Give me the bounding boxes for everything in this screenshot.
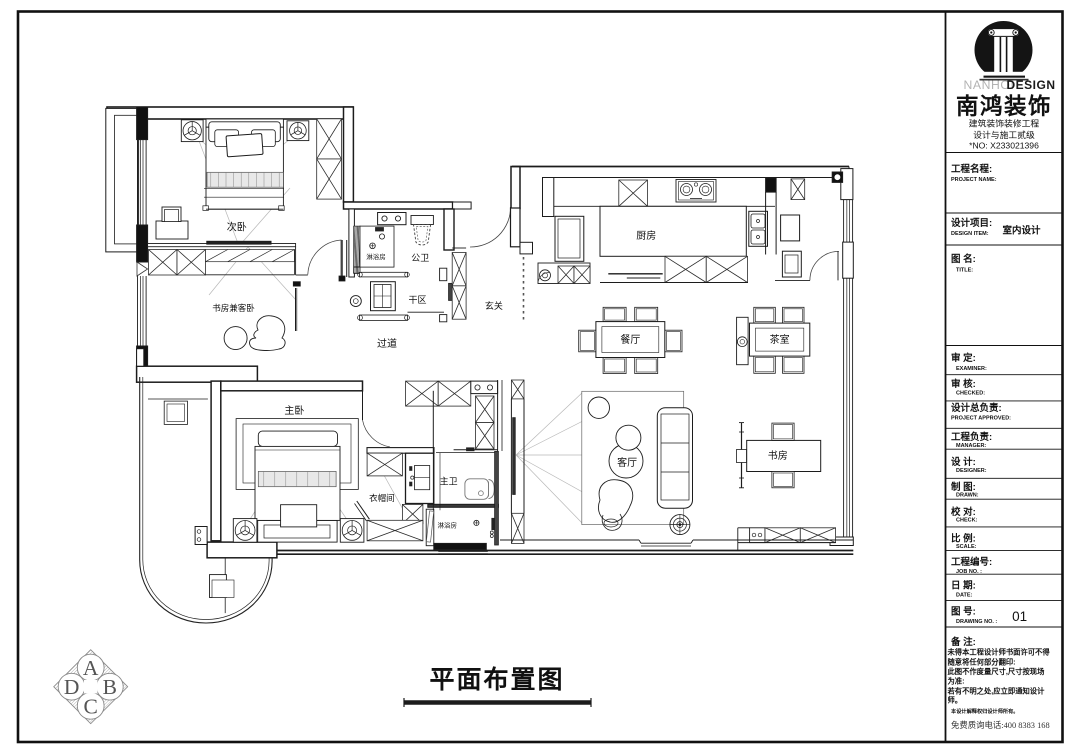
svg-text:设计总负责:: 设计总负责:	[951, 402, 1002, 414]
svg-text:次卧: 次卧	[227, 221, 247, 234]
svg-text:公卫: 公卫	[411, 253, 429, 263]
svg-text:设 计:: 设 计:	[951, 456, 976, 468]
svg-text:校 对:: 校 对:	[951, 506, 976, 518]
svg-text:书房兼客卧: 书房兼客卧	[212, 303, 255, 313]
svg-text:PROJECT NAME:: PROJECT NAME:	[951, 177, 997, 183]
svg-text:主卧: 主卧	[284, 404, 304, 417]
svg-text:干区: 干区	[408, 295, 426, 305]
svg-text:设计与施工贰级: 设计与施工贰级	[973, 129, 1035, 140]
svg-text:主卫: 主卫	[440, 476, 458, 487]
svg-text:若有不明之处,应立即通知设计: 若有不明之处,应立即通知设计	[947, 687, 1046, 696]
svg-text:衣帽间: 衣帽间	[369, 493, 395, 503]
svg-text:TITLE:: TITLE:	[956, 267, 973, 273]
svg-text:DRAWN:: DRAWN:	[956, 492, 979, 498]
svg-text:免费质询电话:400 8383 168: 免费质询电话:400 8383 168	[951, 720, 1050, 730]
svg-text:比 例:: 比 例:	[951, 533, 976, 545]
svg-text:CHECK:: CHECK:	[956, 518, 978, 524]
svg-text:01: 01	[1012, 609, 1027, 624]
svg-text:MANAGER:: MANAGER:	[956, 443, 986, 449]
svg-text:未得本工程设计师书面许可不得: 未得本工程设计师书面许可不得	[947, 648, 1051, 657]
svg-text:C: C	[84, 694, 98, 718]
svg-text:制 图:: 制 图:	[951, 481, 976, 493]
svg-text:工程名程:: 工程名程:	[951, 163, 992, 175]
svg-text:PROJECT APPROVED:: PROJECT APPROVED:	[951, 416, 1011, 422]
svg-text:玄关: 玄关	[485, 300, 503, 311]
svg-text:图 名:: 图 名:	[951, 253, 976, 265]
svg-text:DATE:: DATE:	[956, 592, 973, 598]
svg-text:日 期:: 日 期:	[951, 580, 976, 592]
svg-text:本设计解释权归设计师所有。: 本设计解释权归设计师所有。	[951, 707, 1018, 715]
svg-text:图 号:: 图 号:	[951, 607, 976, 618]
svg-text:A: A	[83, 656, 99, 680]
svg-text:CHECKED:: CHECKED:	[956, 390, 985, 396]
svg-text:过道: 过道	[377, 337, 397, 350]
svg-text:客厅: 客厅	[617, 456, 637, 469]
svg-text:DESIGNER:: DESIGNER:	[956, 468, 987, 474]
svg-text:审 定:: 审 定:	[951, 352, 976, 364]
svg-text:南鸿装饰: 南鸿装饰	[956, 93, 1052, 119]
svg-text:DESIGN ITEM:: DESIGN ITEM:	[951, 231, 989, 237]
svg-text:此图不作度量尺寸,尺寸按现场: 此图不作度量尺寸,尺寸按现场	[948, 667, 1045, 676]
svg-text:EXAMINER:: EXAMINER:	[956, 366, 987, 372]
svg-text:随意将任何部分翻印:: 随意将任何部分翻印:	[948, 657, 1016, 666]
svg-text:DESIGN: DESIGN	[1007, 78, 1056, 92]
svg-text:SCALE:: SCALE:	[956, 544, 977, 550]
svg-text:为准:: 为准:	[948, 676, 965, 685]
svg-text:B: B	[103, 675, 117, 699]
svg-text:餐厅: 餐厅	[620, 333, 640, 346]
svg-text:工程负责:: 工程负责:	[951, 431, 992, 443]
svg-text:淋浴房: 淋浴房	[366, 252, 386, 261]
svg-text:师。: 师。	[948, 696, 963, 705]
svg-text:厨房: 厨房	[636, 229, 656, 242]
svg-text:书房: 书房	[768, 449, 788, 462]
svg-text:*NO: X233021396: *NO: X233021396	[969, 141, 1039, 151]
svg-text:设计项目:: 设计项目:	[951, 217, 992, 229]
svg-text:建筑装饰装修工程: 建筑装饰装修工程	[969, 118, 1040, 129]
svg-text:平面布置图: 平面布置图	[429, 665, 564, 694]
svg-text:室内设计: 室内设计	[1002, 225, 1041, 237]
svg-text:工程编号:: 工程编号:	[951, 556, 992, 568]
svg-text:淋浴房: 淋浴房	[437, 521, 457, 530]
svg-text:茶室: 茶室	[770, 333, 790, 346]
svg-text:备 注:: 备 注:	[950, 636, 976, 648]
svg-text:DRAWING NO. :: DRAWING NO. :	[956, 619, 997, 625]
svg-text:审 核:: 审 核:	[951, 378, 976, 390]
svg-text:D: D	[64, 675, 80, 699]
